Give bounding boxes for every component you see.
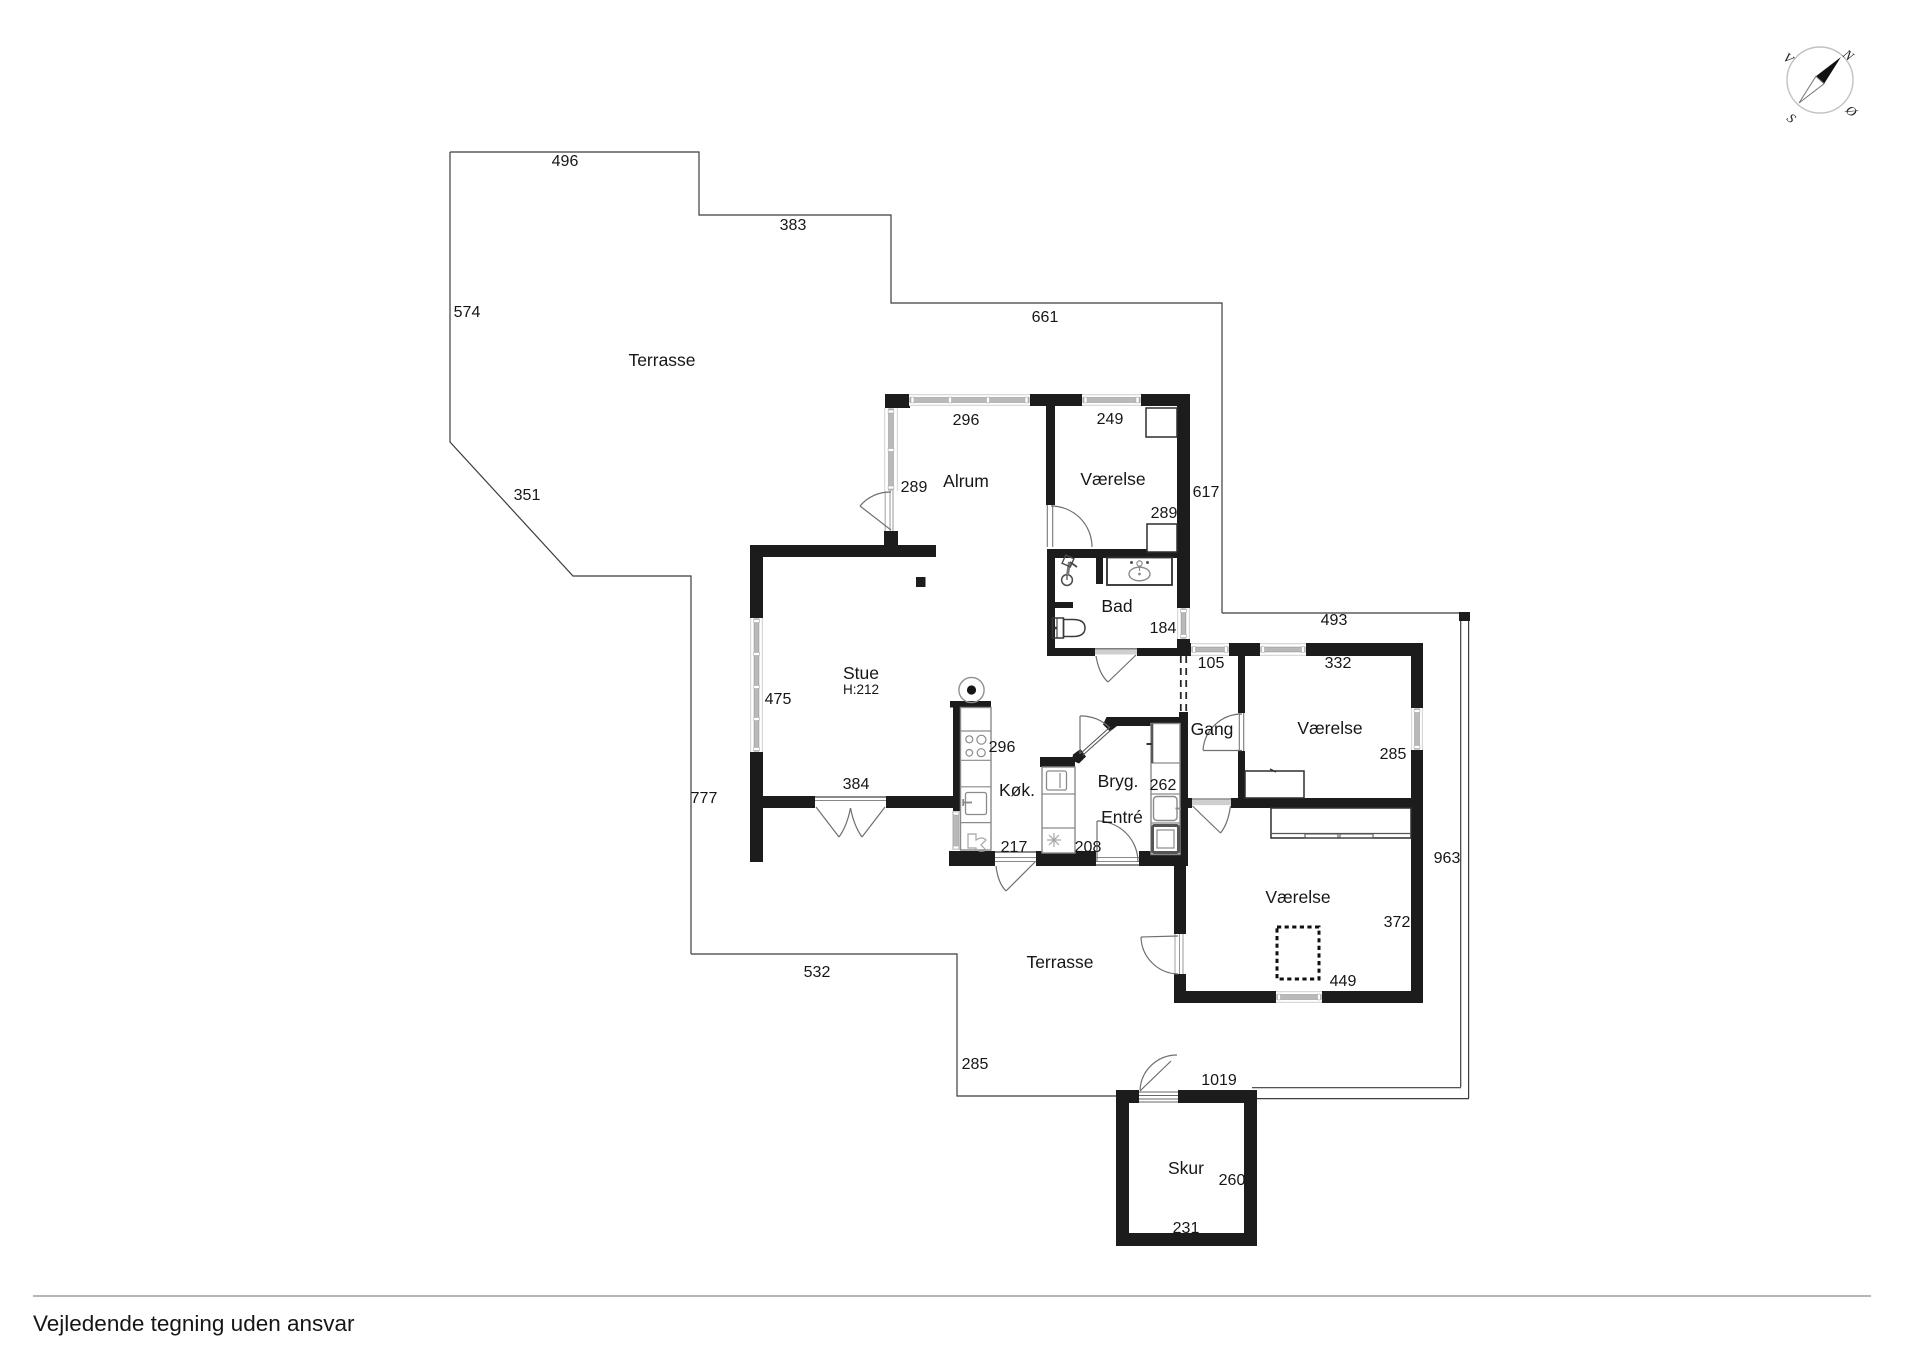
svg-text:Skur: Skur (1168, 1158, 1204, 1178)
svg-text:661: 661 (1032, 309, 1059, 326)
svg-text:Entré: Entré (1101, 807, 1143, 827)
svg-text:289: 289 (901, 479, 928, 496)
svg-text:Alrum: Alrum (943, 471, 989, 491)
svg-text:105: 105 (1198, 655, 1225, 672)
svg-text:285: 285 (1380, 746, 1407, 763)
svg-text:372: 372 (1384, 914, 1411, 931)
svg-text:475: 475 (765, 691, 792, 708)
svg-text:H:212: H:212 (843, 682, 879, 697)
svg-text:Bad: Bad (1101, 596, 1132, 616)
svg-text:208: 208 (1075, 839, 1102, 856)
svg-text:285: 285 (962, 1056, 989, 1073)
svg-text:Køk.: Køk. (999, 780, 1035, 800)
svg-text:184: 184 (1150, 620, 1177, 637)
svg-text:449: 449 (1330, 973, 1357, 990)
svg-text:217: 217 (1001, 839, 1028, 856)
svg-text:Værelse: Værelse (1297, 718, 1362, 738)
svg-text:Terrasse: Terrasse (628, 350, 695, 370)
svg-text:1019: 1019 (1201, 1072, 1237, 1089)
svg-text:231: 231 (1173, 1220, 1200, 1237)
svg-text:249: 249 (1097, 411, 1124, 428)
svg-text:Stue: Stue (843, 663, 879, 683)
svg-text:332: 332 (1325, 655, 1352, 672)
svg-text:Vejledende tegning uden ansvar: Vejledende tegning uden ansvar (33, 1311, 355, 1336)
svg-text:260: 260 (1219, 1172, 1246, 1189)
svg-text:289: 289 (1151, 505, 1178, 522)
svg-text:617: 617 (1193, 484, 1220, 501)
svg-text:574: 574 (454, 304, 481, 321)
svg-text:383: 383 (780, 217, 807, 234)
svg-text:384: 384 (843, 776, 870, 793)
svg-text:Terrasse: Terrasse (1026, 952, 1093, 972)
svg-text:Gang: Gang (1191, 719, 1234, 739)
svg-text:Værelse: Værelse (1080, 469, 1145, 489)
svg-text:Værelse: Værelse (1265, 887, 1330, 907)
svg-text:496: 496 (552, 153, 579, 170)
svg-text:Bryg.: Bryg. (1098, 771, 1139, 791)
svg-text:262: 262 (1150, 777, 1177, 794)
svg-text:296: 296 (989, 739, 1016, 756)
svg-text:777: 777 (691, 790, 718, 807)
svg-text:296: 296 (953, 412, 980, 429)
svg-text:493: 493 (1321, 612, 1348, 629)
svg-text:963: 963 (1434, 850, 1461, 867)
svg-text:532: 532 (804, 964, 831, 981)
svg-text:351: 351 (514, 487, 541, 504)
